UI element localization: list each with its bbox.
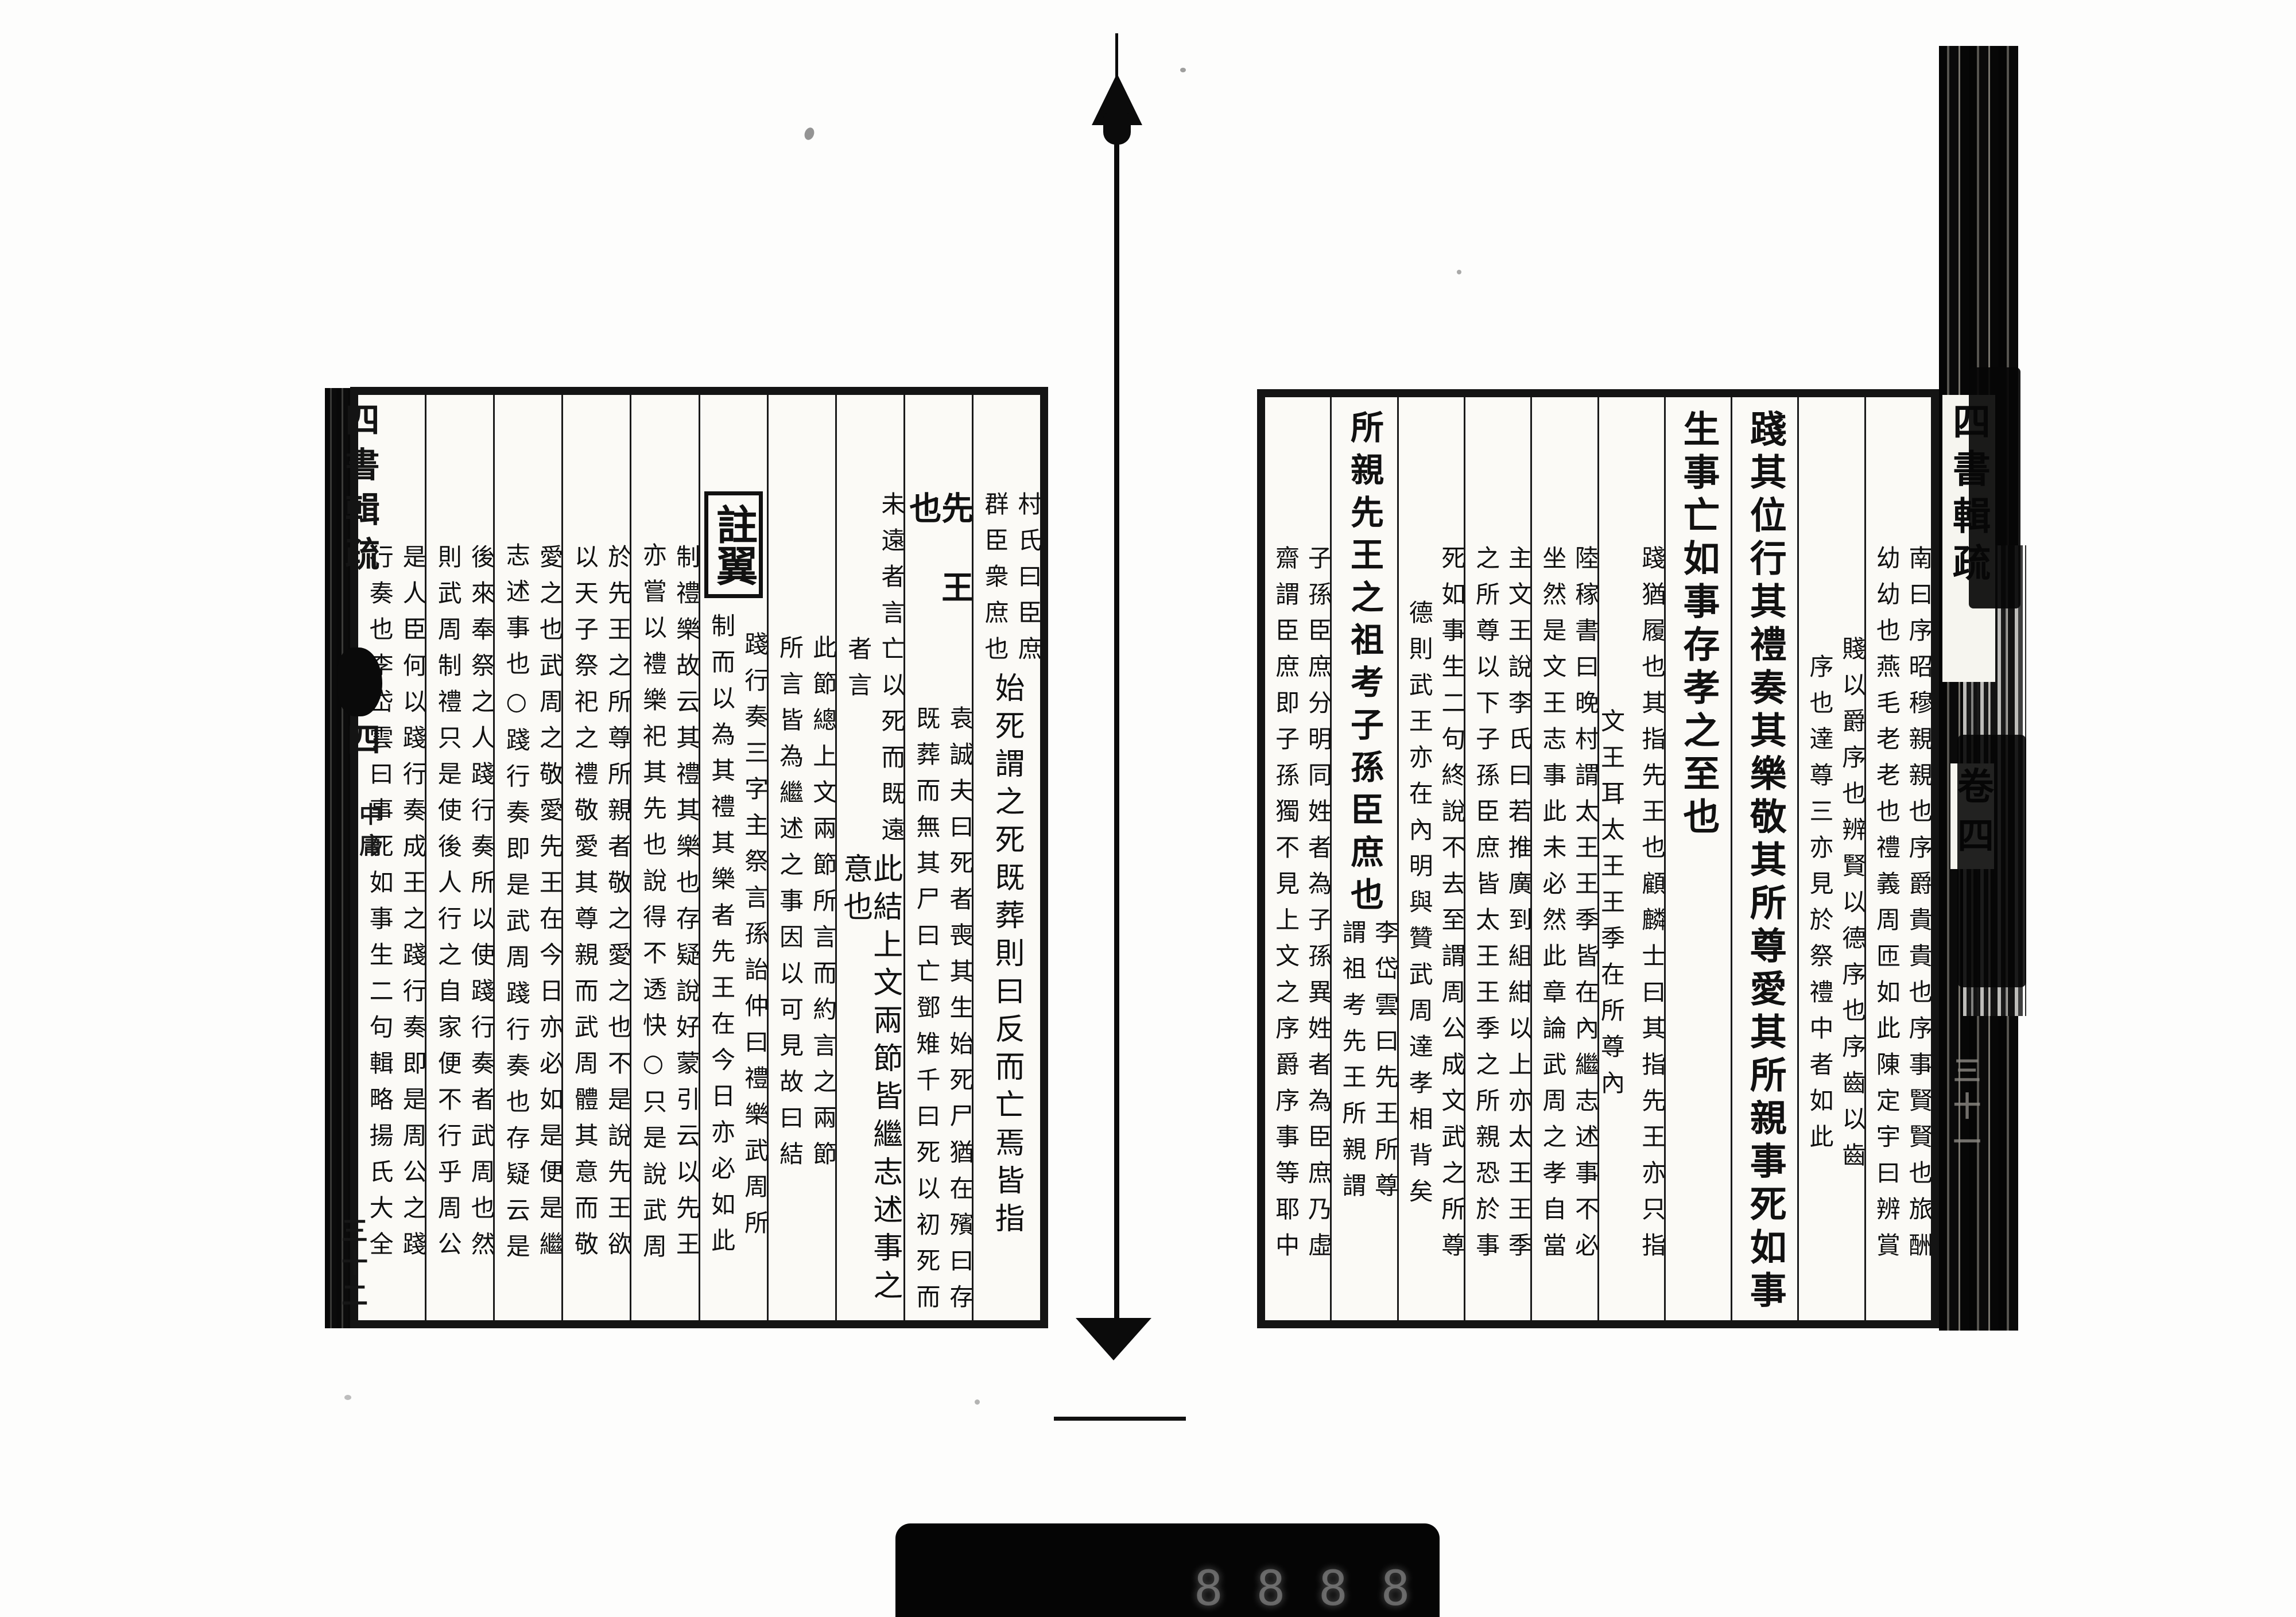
commentary-line-left: 以天子祭祀之禮敬愛其尊親而武周體其意而敬 [563, 491, 596, 1320]
left_page-column-6: 制禮樂故云其禮其樂也存疑說好蒙引云以先王亦嘗以禮樂祀其先也說得不透快○只是說武周 [630, 395, 698, 1320]
interlinear-commentary: 南曰序昭穆親親也序爵貴貴也序事賢賢也旅酬幼幼也燕毛老老也禮義周匝如此陳定宇曰辨賞 [1866, 494, 1931, 1320]
fold-bottom-ornament [1076, 1318, 1151, 1360]
interlinear-commentary: 後來奉祭之人踐行奏所以使踐行奏者武周也然則武周制禮只是使後人行之自家便不行乎周公 [426, 491, 493, 1320]
scan-speck [803, 126, 816, 141]
ink-smudge [338, 647, 382, 716]
book-section-label: 中庸 [357, 802, 380, 864]
commentary-line-left: 齋謂臣庶即子孫獨不見上文之序爵序事等耶中 [1265, 494, 1298, 1320]
commentary-line-right: 未遠者言亡以死而既遠 [870, 491, 903, 853]
commentary-line-right: 李岱雲曰先王所尊 [1364, 920, 1397, 1209]
commentary-text-line: 先王也 [906, 491, 971, 694]
commentary-line-left: 文王耳太王王季在所尊內 [1599, 494, 1632, 1320]
canon-text-line: 生事亡如事存孝之至也 [1680, 410, 1716, 840]
commentary-line-left: 德則武王亦在內明與贊武周達孝相背矣 [1399, 494, 1432, 1320]
commentary-line-right: 村氏曰臣庶 [1007, 491, 1040, 672]
left_page-column-2: 先王也袁誠夫曰死者喪其生始死尸猶在殯曰存既葬而無其尸曰亡鄧雉千曰死以初死而 [903, 395, 972, 1320]
interlinear-commentary: 子孫臣庶分明同姓者為子孫異姓者為臣庶乃虛齋謂臣庶即子孫獨不見上文之序爵序事等耶中 [1265, 494, 1330, 1320]
ink-smudge [1957, 735, 2026, 987]
right_page-column-4: 生事亡如事存孝之至也 [1664, 397, 1731, 1320]
commentary-line-right: 死如事生二句終說不去至謂周公成文武之所尊 [1431, 494, 1464, 1320]
scan-speck [1457, 270, 1461, 274]
scan-speck [975, 1399, 980, 1405]
commentary-text-line: 此結上文兩節皆繼志述事之意也 [840, 853, 900, 1320]
interlinear-commentary: 踐猶履也其指先王也顧麟士曰其指先王亦只指文王耳太王王季在所尊內 [1599, 494, 1664, 1320]
commentary-line-left: 幼幼也燕毛老老也禮義周匝如此陳定宇曰辨賞 [1866, 494, 1899, 1320]
left_page-column-7: 於先王之所尊所親者敬之愛之也不是說先王欲以天子祭祀之禮敬愛其尊親而武周體其意而敬 [561, 395, 630, 1320]
right_page-column-2: 賤以爵序也辨賢以德序也序齒以齒序也達尊三亦見於祭禮中者如此 [1797, 397, 1864, 1320]
commentary-line-right: 後來奉祭之人踐行奏所以使踐行奏者武周也然 [460, 491, 493, 1320]
interlinear-commentary: 李岱雲曰先王所尊謂祖考先王所親謂 [1332, 920, 1397, 1209]
interlinear-commentary: 此節總上文兩節所言而約言之兩節所言皆為繼述之事因以可見故曰結 [769, 491, 835, 1320]
left-page-columns: 村氏曰臣庶群臣衆庶也始死謂之死既葬則曰反而亡焉皆指先王也袁誠夫曰死者喪其生始死尸… [358, 395, 1040, 1320]
right-folio-number: 三十一 [1950, 1056, 1978, 1163]
commentary-line-left: 行奏也李岱雲曰事死如事生二句輯略揚氏大全 [358, 491, 391, 1320]
commentary-line-right: 踐行奏三字主祭言孫詒仲曰禮樂武周所 [734, 613, 767, 1264]
commentary-line-left: 制而以為其禮其樂者先王在今日亦必如此 [700, 613, 734, 1264]
left_page-column-8: 愛之也武周之敬愛先王在今日亦必如是便是繼志述事也○踐行奏即是武周踐行奏也存疑云是 [493, 395, 561, 1320]
interlinear-commentary: 未遠者言亡以死而既遠者言 [837, 491, 903, 853]
commentary-line-right: 是人臣何以踐行奏成王之踐行奏即是周公之踐 [391, 491, 425, 1320]
interlinear-commentary: 是人臣何以踐行奏成王之踐行奏即是周公之踐行奏也李岱雲曰事死如事生二句輯略揚氏大全 [358, 491, 425, 1320]
interlinear-commentary: 踐行奏三字主祭言孫詒仲曰禮樂武周所制而以為其禮其樂者先王在今日亦必如此 [700, 613, 767, 1264]
commentary-line-left: 既葬而無其尸曰亡鄧雉千曰死以初死而 [905, 705, 938, 1320]
commentary-line-right: 愛之也武周之敬愛先王在今日亦必如是便是繼 [528, 491, 561, 1320]
commentary-text-line: 所親先王之祖考子孫臣庶也 [1348, 410, 1381, 920]
interlinear-commentary: 於先王之所尊所親者敬之愛之也不是說先王欲以天子祭祀之禮敬愛其尊親而武周體其意而敬 [563, 491, 630, 1320]
scan-speck [1180, 68, 1186, 72]
right_page-column-9: 所親先王之祖考子孫臣庶也李岱雲曰先王所尊謂祖考先王所親謂 [1330, 397, 1397, 1320]
right_page-column-3: 踐其位行其禮奏其樂敬其所尊愛其所親事死如事 [1731, 397, 1797, 1320]
left-spine-title: 四書輯疏 [342, 402, 377, 581]
right_page-column-7: 主文王說李氏曰若推廣到組紺以上亦太王王季之所尊以下子孫臣庶皆太王王季之所親恐於事 [1464, 397, 1530, 1320]
section-header-box: 註翼 [704, 491, 763, 598]
scan-speck [344, 1395, 351, 1400]
commentary-line-right: 踐猶履也其指先王也顧麟士曰其指先王亦只指 [1631, 494, 1664, 1320]
right-page-columns: 南曰序昭穆親親也序爵貴貴也序事賢賢也旅酬幼幼也燕毛老老也禮義周匝如此陳定宇曰辨賞… [1265, 397, 1931, 1320]
commentary-line-left: 序也達尊三亦見於祭禮中者如此 [1799, 494, 1832, 1320]
commentary-line-right: 袁誠夫曰死者喪其生始死尸猶在殯曰存 [938, 705, 972, 1320]
commentary-line-right: 主文王說李氏曰若推廣到組紺以上亦太王王季 [1498, 494, 1531, 1320]
commentary-line-left: 之所尊以下子孫臣庶皆太王王季之所親恐於事 [1465, 494, 1498, 1320]
commentary-line-left: 謂祖考先王所親謂 [1332, 920, 1364, 1209]
commentary-line-left: 者言 [837, 491, 870, 853]
interlinear-commentary: 村氏曰臣庶群臣衆庶也 [974, 491, 1040, 672]
commentary-line-left: 亦嘗以禮樂祀其先也說得不透快○只是說武周 [631, 491, 665, 1320]
fold-stem [1115, 33, 1118, 79]
interlinear-commentary: 制禮樂故云其禮其樂也存疑說好蒙引云以先王亦嘗以禮樂祀其先也說得不透快○只是說武周 [631, 491, 698, 1320]
scanned-book-spread: 南曰序昭穆親親也序爵貴貴也序事賢賢也旅酬幼幼也燕毛老老也禮義周匝如此陳定宇曰辨賞… [0, 0, 2296, 1617]
commentary-line-right: 於先王之所尊所親者敬之愛之也不是說先王欲 [596, 491, 630, 1320]
commentary-line-left: 群臣衆庶也 [974, 491, 1007, 672]
left_page-column-5: 註翼踐行奏三字主祭言孫詒仲曰禮樂武周所制而以為其禮其樂者先王在今日亦必如此 [699, 395, 767, 1320]
right_page-column-8: 死如事生二句終說不去至謂周公成文武之所尊德則武王亦在內明與贊武周達孝相背矣 [1397, 397, 1464, 1320]
commentary-line-right: 子孫臣庶分明同姓者為子孫異姓者為臣庶乃虛 [1298, 494, 1331, 1320]
interlinear-commentary: 死如事生二句終說不去至謂周公成文武之所尊德則武王亦在內明與贊武周達孝相背矣 [1399, 494, 1464, 1320]
left_page-column-3: 未遠者言亡以死而既遠者言此結上文兩節皆繼志述事之意也 [835, 395, 903, 1320]
left_page-column-4: 此節總上文兩節所言而約言之兩節所言皆為繼述之事因以可見故曰結 [767, 395, 835, 1320]
right_page-column-1: 南曰序昭穆親親也序爵貴貴也序事賢賢也旅酬幼幼也燕毛老老也禮義周匝如此陳定宇曰辨賞 [1864, 397, 1931, 1320]
commentary-line-left: 則武周制禮只是使後人行之自家便不行乎周公 [426, 491, 460, 1320]
commentary-line-left: 志述事也○踐行奏即是武周踐行奏也存疑云是 [495, 491, 528, 1320]
fold-bottom-mark [1054, 1417, 1186, 1421]
right_page-column-10: 子孫臣庶分明同姓者為子孫異姓者為臣庶乃虛齋謂臣庶即子孫獨不見上文之序爵序事等耶中 [1265, 397, 1330, 1320]
frame-counter-digits: 8888 [1194, 1560, 1443, 1616]
right_page-column-6: 陸稼書曰晚村謂太王王季皆在內繼志述事不必坐然是文王志事此未必然此章論武周之孝自當 [1530, 397, 1597, 1320]
left_page-column-9: 後來奉祭之人踐行奏所以使踐行奏者武周也然則武周制禮只是使後人行之自家便不行乎周公 [425, 395, 493, 1320]
commentary-line-right: 制禮樂故云其禮其樂也存疑說好蒙引云以先王 [665, 491, 698, 1320]
ink-smudge [1969, 367, 2020, 608]
commentary-line-right: 陸稼書曰晚村謂太王王季皆在內繼志述事不必 [1565, 494, 1597, 1320]
interlinear-commentary: 袁誠夫曰死者喪其生始死尸猶在殯曰存既葬而無其尸曰亡鄧雉千曰死以初死而 [905, 705, 972, 1320]
right-page: 南曰序昭穆親親也序爵貴貴也序事賢賢也旅酬幼幼也燕毛老老也禮義周匝如此陳定宇曰辨賞… [1257, 389, 1939, 1328]
center-fold-line [1114, 86, 1119, 1349]
commentary-text-line: 始死謂之死既葬則曰反而亡焉皆指 [992, 672, 1022, 1240]
interlinear-commentary: 賤以爵序也辨賢以德序也序齒以齒序也達尊三亦見於祭禮中者如此 [1799, 494, 1864, 1320]
commentary-line-right: 南曰序昭穆親親也序爵貴貴也序事賢賢也旅酬 [1898, 494, 1931, 1320]
commentary-line-left: 所言皆為繼述之事因以可見故曰結 [769, 491, 802, 1320]
right_page-column-5: 踐猶履也其指先王也顧麟士曰其指先王亦只指文王耳太王王季在所尊內 [1597, 397, 1664, 1320]
canon-text-line: 踐其位行其禮奏其樂敬其所尊愛其所親事死如事 [1747, 410, 1783, 1314]
left-page: 村氏曰臣庶群臣衆庶也始死謂之死既葬則曰反而亡焉皆指先王也袁誠夫曰死者喪其生始死尸… [350, 387, 1048, 1328]
commentary-line-right: 賤以爵序也辨賢以德序也序齒以齒 [1832, 494, 1864, 1320]
interlinear-commentary: 愛之也武周之敬愛先王在今日亦必如是便是繼志述事也○踐行奏即是武周踐行奏也存疑云是 [495, 491, 561, 1320]
left_page-column-1: 村氏曰臣庶群臣衆庶也始死謂之死既葬則曰反而亡焉皆指 [972, 395, 1040, 1320]
interlinear-commentary: 陸稼書曰晚村謂太王王季皆在內繼志述事不必坐然是文王志事此未必然此章論武周之孝自當 [1532, 494, 1597, 1320]
commentary-line-left: 坐然是文王志事此未必然此章論武周之孝自當 [1532, 494, 1565, 1320]
commentary-line-right: 此節總上文兩節所言而約言之兩節 [802, 491, 835, 1320]
interlinear-commentary: 主文王說李氏曰若推廣到組紺以上亦太王王季之所尊以下子孫臣庶皆太王王季之所親恐於事 [1465, 494, 1530, 1320]
left-folio-number: 三十二 [340, 1217, 366, 1313]
